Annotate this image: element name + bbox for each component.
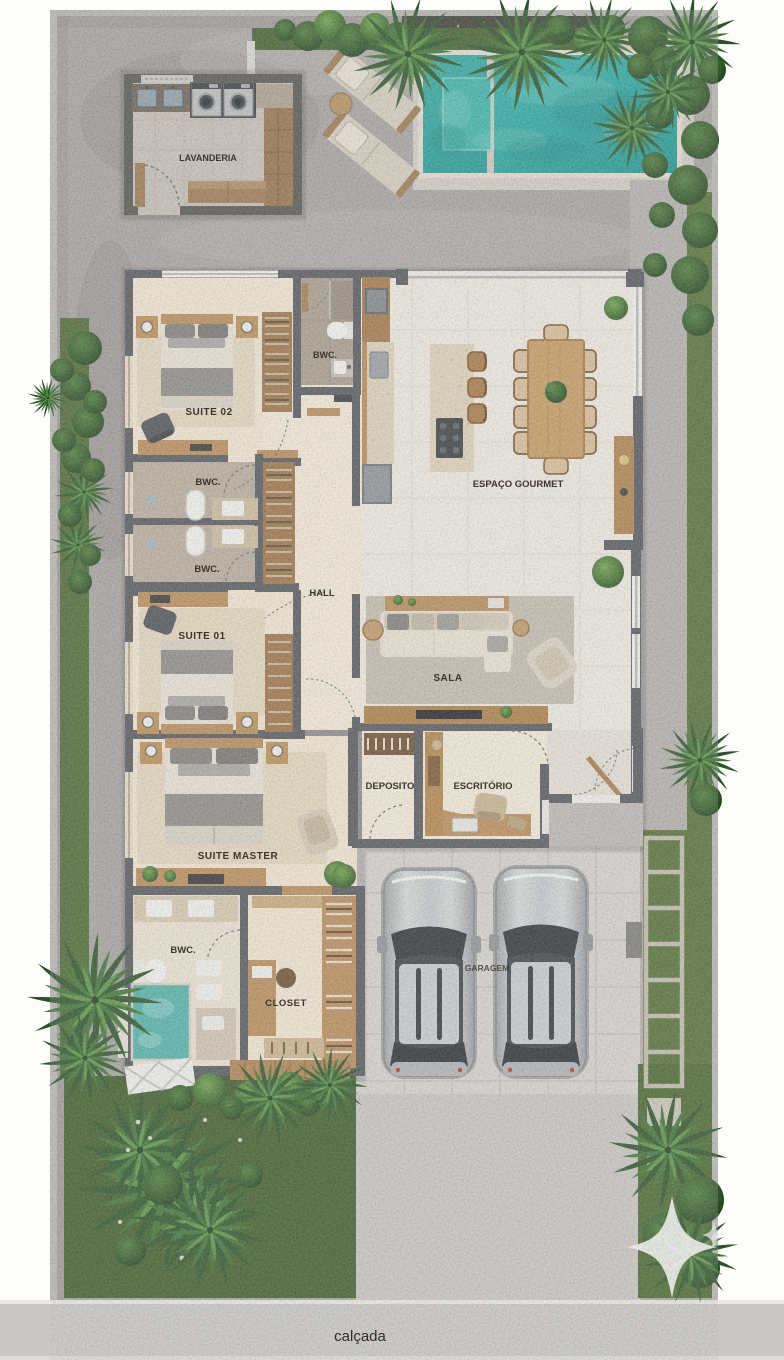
svg-text:SUITE 01: SUITE 01: [178, 631, 225, 642]
svg-text:ESCRITÓRIO: ESCRITÓRIO: [453, 780, 512, 792]
svg-text:BWC.: BWC.: [195, 477, 220, 488]
svg-text:ESPAÇO GOURMET: ESPAÇO GOURMET: [473, 479, 564, 490]
svg-text:LAVANDERIA: LAVANDERIA: [179, 153, 237, 163]
svg-text:CLOSET: CLOSET: [265, 998, 307, 1009]
svg-text:SALA: SALA: [433, 673, 462, 684]
svg-text:calçada: calçada: [334, 1328, 386, 1345]
svg-text:BWC.: BWC.: [313, 350, 337, 360]
svg-text:BWC.: BWC.: [194, 564, 219, 575]
svg-text:DEPOSITO: DEPOSITO: [366, 781, 415, 792]
svg-text:BWC.: BWC.: [170, 945, 195, 956]
svg-text:GARAGEM: GARAGEM: [465, 963, 509, 973]
svg-text:HALL: HALL: [309, 588, 335, 599]
svg-text:SUITE MASTER: SUITE MASTER: [198, 851, 279, 862]
svg-text:SUITE 02: SUITE 02: [185, 407, 232, 418]
